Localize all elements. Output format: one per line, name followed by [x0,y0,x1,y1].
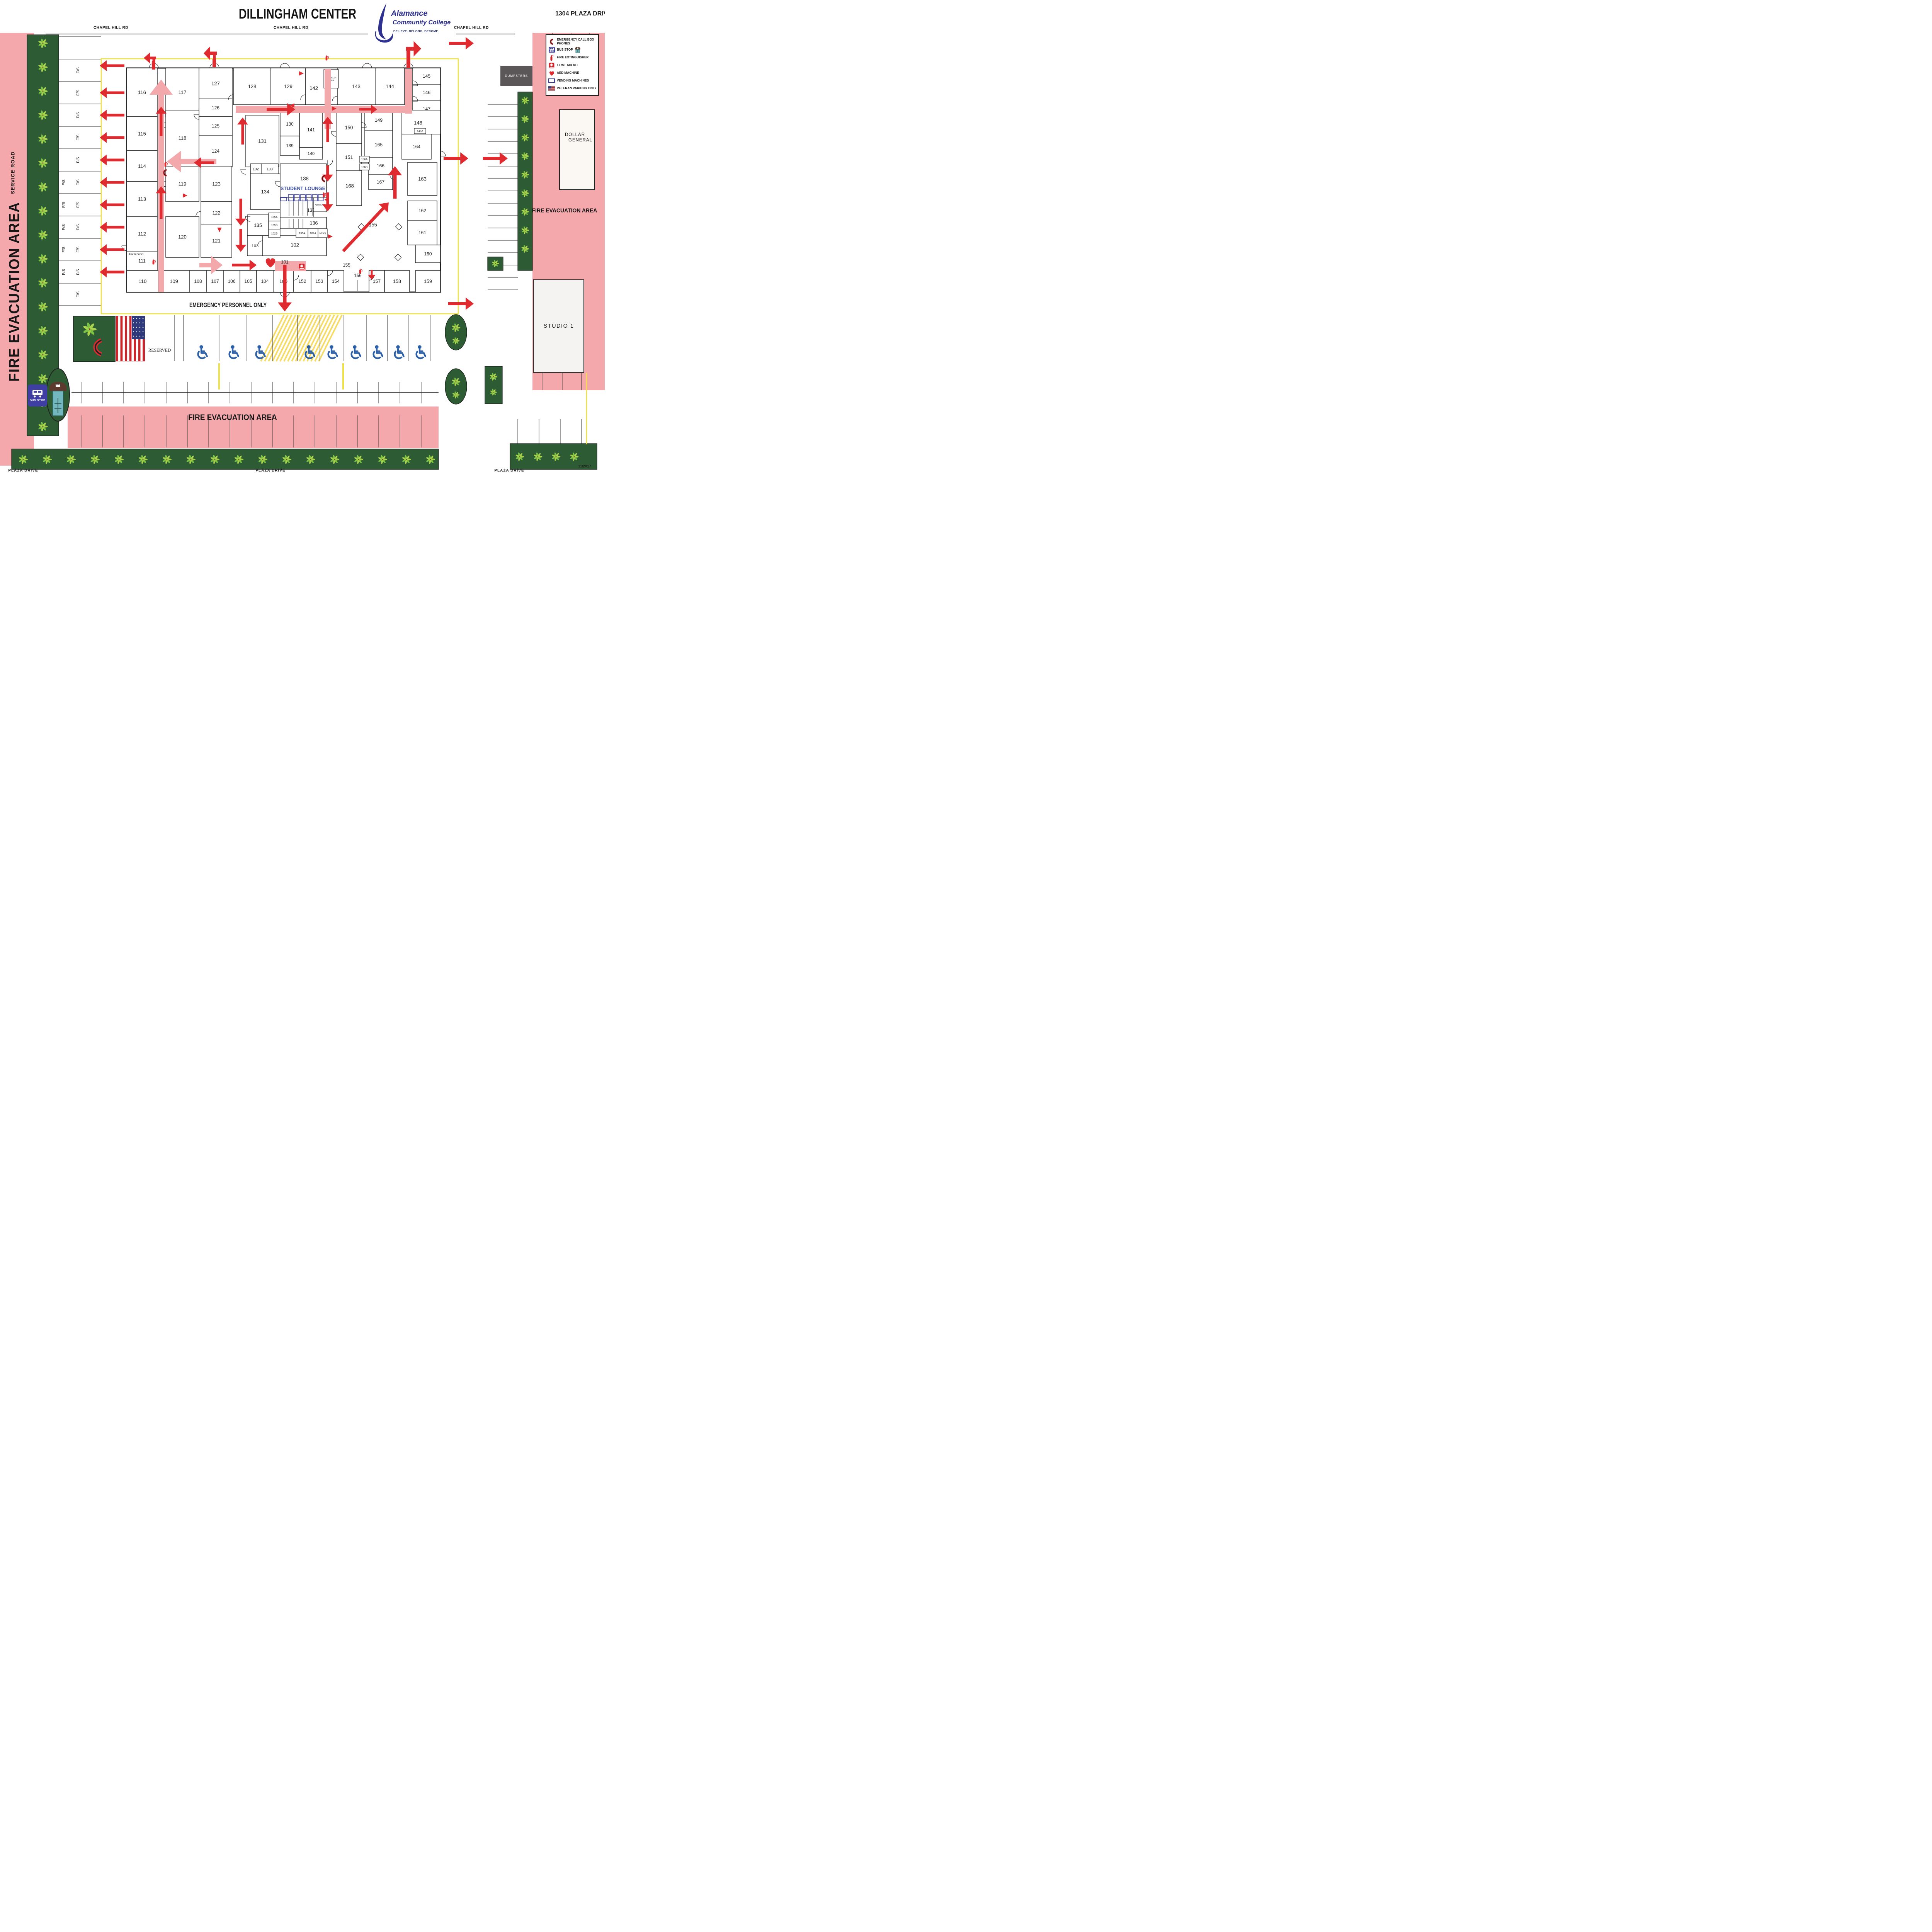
dollar-general-label-2: GENERAL [568,138,594,143]
fs-parking-label: F/S [62,269,66,275]
hedge [485,366,502,404]
fs-parking-label: F/S [76,112,80,118]
bus-stop-sign: BUS STOP [28,384,47,406]
room-label: 129 [284,83,293,89]
fs-parking-label: F/S [76,247,80,253]
legend-label: AED MACHINE [557,71,579,75]
room-label: 126 [212,105,219,111]
room-label: 151 [345,155,353,160]
emergency-phone-icon [548,38,555,45]
room-label-155-lower: 155 [343,263,350,268]
bus-stop-icon [548,47,555,53]
room-148A-label: 148A [417,130,423,133]
room-label: 142 [310,85,318,91]
room-label: 134 [261,189,270,195]
evacuation-arrow [100,244,124,255]
room-label: 118 [179,135,187,141]
call-box-station [73,316,115,362]
room-label: 111 [138,258,146,264]
evacuation-arrow [100,87,124,98]
emergency-personnel-label: EMERGENCY PERSONNEL ONLY [189,301,267,308]
legend-label: FIRST AID KIT [557,63,578,67]
room-166A-label: 166A [361,158,368,161]
legend-row: BUS STOP [548,47,597,53]
room-label: 122 [213,210,221,216]
room-label: 158 [393,279,401,284]
fs-parking-label: F/S [62,224,66,230]
fire-extinguisher-icon [326,56,329,61]
dumpsters-area: DUMPSTERS [500,66,532,86]
room-label: 165 [375,142,383,148]
room-label: 123 [212,181,221,187]
road-label-plaza-right: PLAZA DRIVE [494,469,524,473]
legend-row: VETERAN PARKING ONLY [548,85,597,92]
logo-name2: Community College [393,19,451,26]
reserved-parking-label: RESERVED [148,348,171,353]
room-label: 140 [308,151,315,156]
room-label: 161 [418,230,426,235]
room-label: 102 [291,242,299,248]
fire-evacuation-area-bottom-label: FIRE EVACUATION AREA [188,413,277,422]
room-label: 135 [254,223,262,228]
road-label-chapel-hill-left: CHAPEL HILL RD [94,26,128,30]
legend-row: FIRE EXTINGUISHER [548,54,597,61]
exit-door-marker [152,61,155,70]
room-label: 163 [418,176,427,182]
room-label: 107 [211,279,219,284]
room-label: 149 [375,117,383,123]
room-136A-label: 136A [299,232,305,235]
room-label-156: 156 [354,274,361,278]
evacuation-arrow [100,60,124,71]
road-label-plaza-center: PLAZA DRIVE [255,469,285,473]
room-label: 168 [345,183,354,189]
legend-row: VENDING MACHINES [548,78,597,84]
evacuation-arrow [449,37,474,49]
room-label: 116 [138,90,146,95]
room-label: 141 [307,127,315,133]
bus-stop-sign-label: BUS STOP [30,398,46,402]
room-label-155-upper: 155 [369,222,377,228]
room-135A-label: 135A [271,216,278,219]
room-label: 152 [298,279,306,284]
fs-parking-label: F/S [76,90,80,96]
evacuation-arrow [405,69,412,114]
room-label: 115 [138,131,146,137]
room-label: 162 [418,208,426,213]
alarm-panel-label: Alarm Panel [129,253,144,256]
room-label: 136 [310,220,318,226]
room-label: 109 [170,279,178,284]
room-label: 157 [373,279,381,284]
mens-room-label: MEN'S [320,232,326,235]
map-legend: EMERGENCY CALL BOX PHONES BUS STOP FIRE … [546,34,599,96]
legend-label: EMERGENCY CALL BOX PHONES [557,38,597,46]
room-label: 164 [413,144,420,150]
logo-name: Alamance [391,9,428,18]
road-label-chapel-hill-right: CHAPEL HILL RD [454,26,489,30]
room-label: 143 [352,83,361,89]
hedge [445,369,467,404]
legend-row: EMERGENCY CALL BOX PHONES [548,38,597,46]
room-label: 108 [194,279,202,284]
evacuation-arrow [406,49,410,68]
bus-shelter [46,369,70,421]
fs-parking-label: F/S [76,134,80,141]
room-label-101: 101 [281,260,288,265]
evacuation-arrow [483,152,508,165]
revision-date: 11/2017 [578,464,591,469]
room-label: 114 [138,163,146,169]
room-label: 154 [332,279,340,284]
room-label: 153 [315,279,323,284]
evacuation-arrow [100,110,124,121]
evacuation-arrow [448,298,474,310]
fs-parking-label: F/S [76,179,80,185]
road-label-chapel-hill-center: CHAPEL HILL RD [274,26,308,30]
double-door-arc [362,63,372,68]
evacuation-arrow [100,155,124,165]
us-flag-vertical [116,316,145,361]
fs-parking-label: F/S [76,157,80,163]
evacuation-arrow [100,222,124,233]
double-door-arc [280,63,289,68]
fire-evacuation-area-right-label: FIRE EVACUATION AREA [532,207,597,214]
fs-parking-label: F/S [62,202,66,208]
room-label: 125 [212,123,219,129]
room-label: 113 [138,196,146,202]
room-label: 104 [261,279,269,284]
room-label: 167 [377,179,384,185]
room-label: 146 [423,90,430,95]
room-label: 150 [345,125,353,130]
bus-shelter-icon [575,47,581,53]
room-102B-label: 102B [271,232,278,235]
fs-parking-label: F/S [76,291,80,298]
logo-tagline: BELIEVE. BELONG. BECOME. [393,29,439,33]
room-102A-label: 102A [310,232,316,235]
evacuation-map-page: 1161171271261281291421431441451461471151… [0,0,605,473]
room-label: 121 [212,238,221,244]
fs-parking-label: F/S [62,247,66,253]
room-label: 106 [228,279,235,284]
room-label: 128 [248,83,257,89]
room-label: 127 [211,81,220,87]
handicap-parking-icon [230,345,238,358]
evacuation-arrow [100,177,124,188]
door-arc [440,151,446,156]
hedge [445,315,467,350]
legend-row: AED MACHINE [548,70,597,77]
evacuation-arrow [100,267,124,277]
room-label: 148 [414,120,422,126]
dollar-general-label-1: DOLLAR [565,133,594,137]
fire-extinguisher-icon [548,54,555,61]
legend-label: BUS STOP [557,48,573,52]
fire-evacuation-area-left-label: FIRE EVACUATION AREA [6,202,23,381]
room-166B-label: 166B [361,166,368,168]
fs-parking-label: F/S [76,269,80,275]
college-logo: Alamance Community College BELIEVE. BELO… [372,2,451,46]
service-road-label: SERVICE ROAD [10,151,16,194]
room-135B-label: 135B [271,224,278,227]
handicap-parking-icon [198,345,207,358]
legend-label: VENDING MACHINES [557,79,589,83]
legend-label: VETERAN PARKING ONLY [557,87,597,90]
logo-swoosh-icon [372,2,395,45]
room-label: 145 [423,73,430,79]
dollar-general-building: DOLLAR GENERAL [559,109,595,190]
room-label: 138 [300,176,309,182]
fs-parking-label: F/S [76,67,80,73]
room-label: 117 [179,90,187,95]
evacuation-arrow [444,152,468,165]
room-label: 166 [377,163,384,168]
studio-1-building: STUDIO 1 [533,279,584,373]
handicap-parking-icon [374,345,383,358]
veteran-flag-icon [548,85,555,92]
room-label: 110 [139,279,147,284]
legend-row: FIRST AID KIT [548,62,597,69]
exit-door-marker [213,59,216,67]
handicap-parking-icon [328,345,337,358]
student-lounge-label: STUDENT LOUNGE [281,186,325,191]
room-label: 105 [244,279,252,284]
handicap-parking-icon [352,345,361,358]
room-label: 144 [386,83,394,89]
first-aid-icon [548,62,555,69]
room-label: 131 [258,138,267,144]
evacuation-arrow [100,132,124,143]
fs-parking-label: F/S [76,202,80,208]
vending-icon [548,78,555,84]
room-136 [280,217,327,229]
room-label: 112 [138,231,146,237]
aed-icon [548,70,555,77]
room-label: 130 [286,122,293,127]
crosswalk-hatch [261,315,342,361]
fs-parking-label: F/S [62,179,66,185]
first-aid-icon [299,264,305,270]
handicap-parking-icon [417,345,425,358]
room-label: 139 [286,144,293,148]
address-label: 1304 PLAZA DRIVE [555,10,605,17]
page-title: DILLINGHAM CENTER [239,6,356,22]
bus-icon [32,389,43,398]
handicap-parking-icon [395,345,404,358]
room-label: 120 [178,234,187,240]
room-label: 119 [179,181,187,187]
road-label-plaza-left: PLAZA DRIVE [8,469,38,473]
fs-parking-label: F/S [76,224,80,230]
room-label: 133 [267,167,273,171]
legend-label: FIRE EXTINGUISHER [557,56,588,60]
room-label: 124 [212,148,219,154]
room-label: 160 [424,251,432,257]
room-label: 159 [424,279,432,284]
room-label: 132 [253,167,259,171]
room-label: 103 [252,244,259,248]
evacuation-arrow [236,106,409,113]
evacuation-arrow [100,199,124,210]
